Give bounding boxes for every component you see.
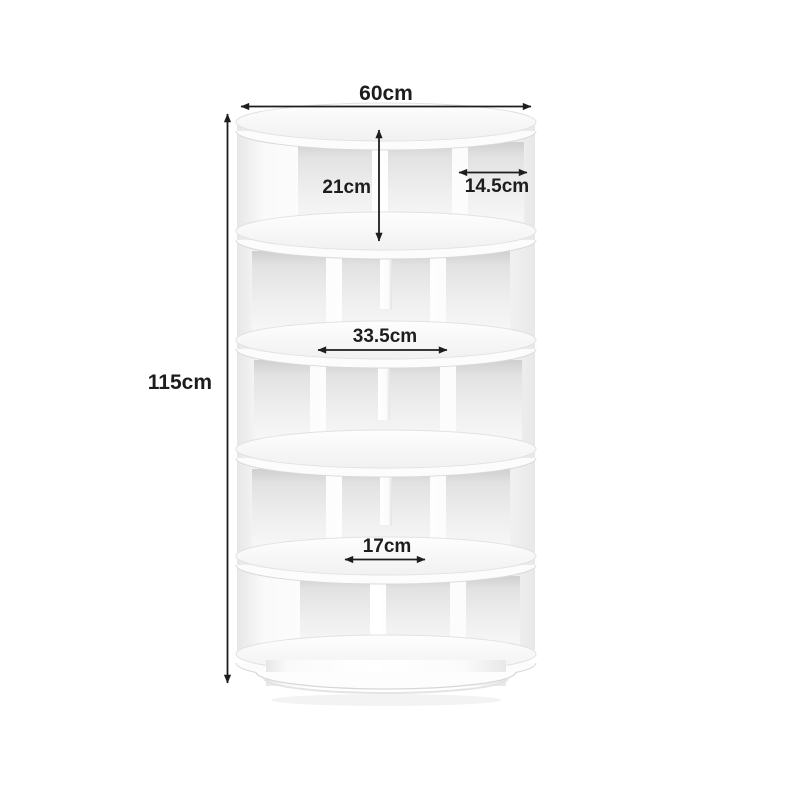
base <box>256 660 516 706</box>
dim-shelf-depth-label: 33.5cm <box>353 326 417 347</box>
top-disc <box>236 103 536 150</box>
dimension-diagram: 60cm 115cm 21cm 14.5cm 33.5cm 17cm <box>0 0 800 800</box>
dim-side-compartment-width: 14.5cm <box>459 173 529 198</box>
dim-tier-inner-height-label: 21cm <box>322 177 371 198</box>
shelf-disc-3 <box>236 430 536 477</box>
shelf-disc-1 <box>236 212 536 259</box>
dim-center-compartment-width-label: 17cm <box>363 536 412 557</box>
dim-top-width: 60cm <box>241 82 531 107</box>
disc-surface <box>236 430 536 468</box>
ground-shadow <box>271 694 501 706</box>
dim-total-height-label: 115cm <box>148 371 212 394</box>
center-pole <box>378 360 390 420</box>
base-rim <box>256 672 516 689</box>
center-pole <box>380 251 392 309</box>
disc-surface <box>236 103 536 141</box>
dim-total-height: 115cm <box>148 114 228 683</box>
dim-side-compartment-width-label: 14.5cm <box>465 176 529 197</box>
dim-top-width-label: 60cm <box>359 82 413 105</box>
disc-surface <box>236 212 536 250</box>
